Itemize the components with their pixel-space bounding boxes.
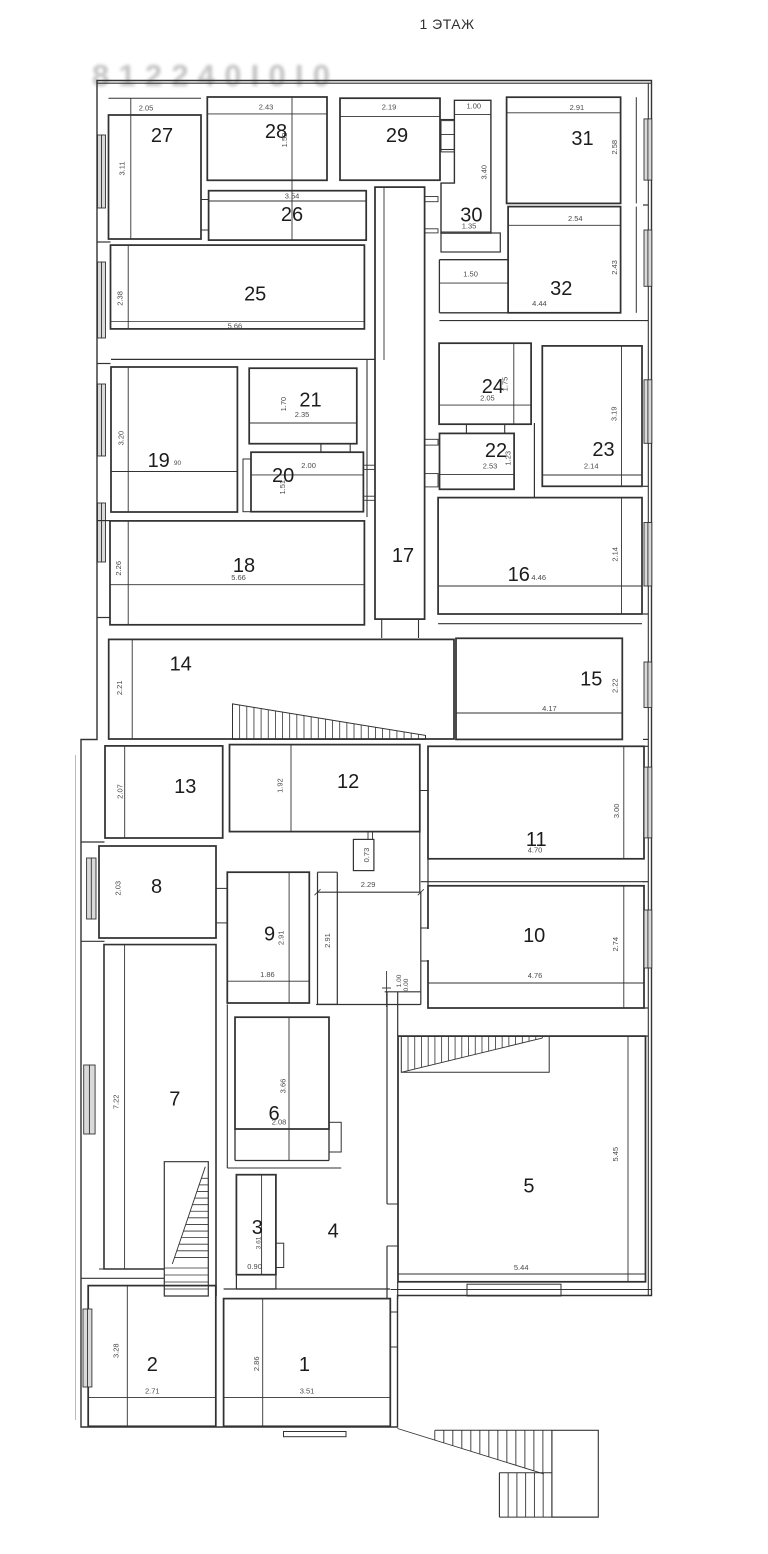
svg-text:26: 26 — [281, 204, 303, 226]
svg-text:1.92: 1.92 — [275, 778, 284, 793]
svg-text:0.90: 0.90 — [247, 1262, 262, 1271]
svg-text:2.26: 2.26 — [114, 561, 123, 576]
svg-text:14: 14 — [170, 653, 192, 675]
svg-text:4: 4 — [328, 1221, 339, 1243]
svg-text:3.51: 3.51 — [300, 1387, 315, 1396]
svg-text:2.00: 2.00 — [301, 461, 316, 470]
svg-text:2.91: 2.91 — [277, 930, 286, 945]
svg-text:2.43: 2.43 — [259, 103, 274, 112]
svg-text:2.05: 2.05 — [480, 394, 495, 403]
svg-text:2.38: 2.38 — [115, 291, 124, 306]
svg-text:3.66: 3.66 — [279, 1079, 288, 1094]
svg-text:3.54: 3.54 — [285, 192, 300, 201]
svg-text:2: 2 — [147, 1354, 158, 1376]
svg-text:1.50: 1.50 — [463, 270, 478, 279]
svg-text:2.03: 2.03 — [114, 881, 123, 896]
svg-text:1.23: 1.23 — [504, 451, 513, 466]
svg-text:2.07: 2.07 — [116, 784, 125, 799]
svg-text:2.86: 2.86 — [252, 1356, 261, 1371]
svg-text:2.21: 2.21 — [115, 680, 124, 695]
svg-text:2.91: 2.91 — [570, 103, 585, 112]
svg-text:17: 17 — [392, 545, 414, 567]
svg-text:10: 10 — [523, 925, 545, 947]
svg-text:15: 15 — [580, 669, 602, 691]
svg-text:3.19: 3.19 — [610, 406, 619, 421]
svg-text:3.20: 3.20 — [116, 431, 125, 446]
svg-text:2.91: 2.91 — [323, 933, 332, 948]
svg-text:4.70: 4.70 — [528, 846, 543, 855]
svg-text:2.22: 2.22 — [611, 678, 620, 693]
svg-text:0.00: 0.00 — [403, 978, 410, 991]
svg-text:5.66: 5.66 — [231, 573, 246, 582]
svg-text:29: 29 — [386, 125, 408, 147]
svg-text:1.00: 1.00 — [466, 102, 481, 111]
svg-text:1.35: 1.35 — [462, 221, 477, 230]
svg-text:812240І0І0: 812240І0І0 — [92, 58, 332, 93]
svg-text:19: 19 — [148, 450, 170, 472]
svg-text:2.43: 2.43 — [610, 260, 619, 275]
svg-text:0.73: 0.73 — [362, 848, 371, 863]
svg-text:28: 28 — [265, 121, 287, 143]
svg-text:1.70: 1.70 — [279, 397, 288, 412]
svg-text:16: 16 — [508, 564, 530, 586]
svg-text:90: 90 — [174, 460, 182, 467]
svg-text:7: 7 — [169, 1088, 180, 1110]
svg-text:8: 8 — [151, 876, 162, 898]
svg-text:1.86: 1.86 — [260, 970, 275, 979]
svg-text:9: 9 — [264, 924, 275, 946]
svg-text:1 ЭТАЖ: 1 ЭТАЖ — [419, 16, 474, 32]
svg-text:2.08: 2.08 — [272, 1118, 287, 1127]
svg-text:4.76: 4.76 — [528, 971, 543, 980]
svg-text:23: 23 — [592, 439, 614, 461]
svg-text:5: 5 — [523, 1176, 534, 1198]
svg-text:13: 13 — [174, 776, 196, 798]
svg-text:2.54: 2.54 — [568, 214, 583, 223]
svg-text:5.66: 5.66 — [228, 321, 243, 330]
svg-text:3: 3 — [252, 1217, 263, 1239]
svg-text:2.35: 2.35 — [295, 410, 310, 419]
svg-text:1.00: 1.00 — [396, 974, 403, 987]
svg-text:2.05: 2.05 — [139, 104, 154, 113]
svg-text:5.45: 5.45 — [611, 1147, 620, 1162]
svg-text:27: 27 — [151, 125, 173, 147]
svg-text:3.28: 3.28 — [112, 1343, 121, 1358]
svg-text:3.11: 3.11 — [117, 161, 126, 175]
svg-text:2.29: 2.29 — [361, 880, 376, 889]
svg-text:7.22: 7.22 — [111, 1094, 120, 1109]
svg-text:1.51: 1.51 — [278, 480, 287, 495]
svg-text:2.14: 2.14 — [584, 462, 599, 471]
svg-text:21: 21 — [299, 390, 321, 412]
svg-text:4.17: 4.17 — [542, 704, 557, 713]
svg-text:2.53: 2.53 — [483, 462, 498, 471]
svg-text:32: 32 — [550, 278, 572, 300]
svg-text:2.74: 2.74 — [611, 937, 620, 952]
svg-text:4.46: 4.46 — [531, 573, 546, 582]
svg-text:1: 1 — [299, 1354, 310, 1376]
svg-text:2.14: 2.14 — [611, 547, 620, 562]
svg-text:31: 31 — [571, 128, 593, 150]
svg-text:12: 12 — [337, 771, 359, 793]
svg-text:3.00: 3.00 — [612, 803, 621, 818]
svg-text:3.61: 3.61 — [255, 1236, 262, 1249]
svg-text:1.75: 1.75 — [501, 377, 510, 392]
svg-text:2.19: 2.19 — [382, 103, 397, 112]
svg-text:25: 25 — [244, 284, 266, 306]
svg-text:5.44: 5.44 — [514, 1263, 529, 1272]
svg-text:3.40: 3.40 — [480, 165, 489, 180]
svg-text:4.44: 4.44 — [532, 299, 547, 308]
svg-text:2.58: 2.58 — [610, 140, 619, 155]
svg-text:2.71: 2.71 — [145, 1387, 160, 1396]
